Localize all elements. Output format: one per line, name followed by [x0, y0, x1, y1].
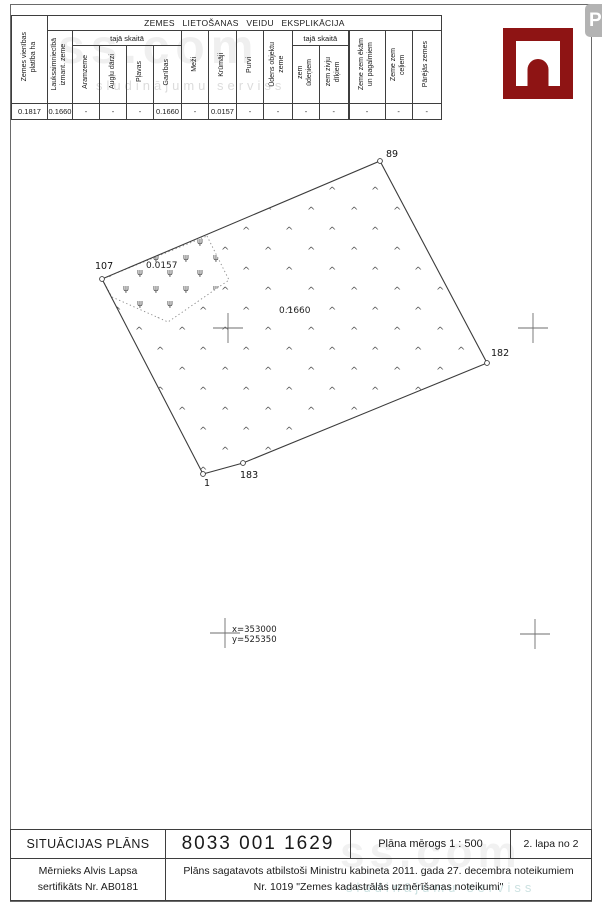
boundary-point-182 — [485, 361, 490, 366]
boundary-point-1 — [201, 472, 206, 477]
document-page: { "explication_table": { "title": "ZEMES… — [0, 0, 602, 910]
cadastre-number: 8033 001 1629 — [166, 830, 351, 859]
situation-map: ^ ^ ψ ψ 89 107 182 183 1 0.0157 0.1660 x… — [0, 0, 602, 910]
boundary-point-89 — [378, 159, 383, 164]
point-label-107: 107 — [95, 261, 113, 272]
point-label-1: 1 — [204, 478, 210, 489]
boundary-point-183 — [241, 461, 246, 466]
point-label-182: 182 — [491, 348, 509, 359]
page-indicator: 2. lapa no 2 — [511, 830, 592, 859]
point-label-89: 89 — [386, 149, 398, 160]
grid-coord-x: x=353000 — [232, 625, 277, 635]
footer-container: SITUĀCIJAS PLĀNS 8033 001 1629 Plāna mēr… — [10, 829, 592, 901]
footer-table: SITUĀCIJAS PLĀNS 8033 001 1629 Plāna mēr… — [10, 829, 592, 901]
area-label-shrub: 0.0157 — [146, 261, 178, 271]
grid-coord-y: y=525350 — [232, 635, 277, 645]
point-label-183: 183 — [240, 470, 258, 481]
area-label-pasture: 0.1660 — [279, 306, 311, 316]
boundary-point-107 — [100, 277, 105, 282]
scale-label: Plāna mērogs 1 : 500 — [351, 830, 511, 859]
doc-type: SITUĀCIJAS PLĀNS — [11, 830, 166, 859]
regulation-note: Plāns sagatavots atbilstoši Ministru kab… — [166, 859, 592, 901]
surveyor-info: Mērnieks Alvis Lapsa sertifikāts Nr. AB0… — [11, 859, 166, 901]
